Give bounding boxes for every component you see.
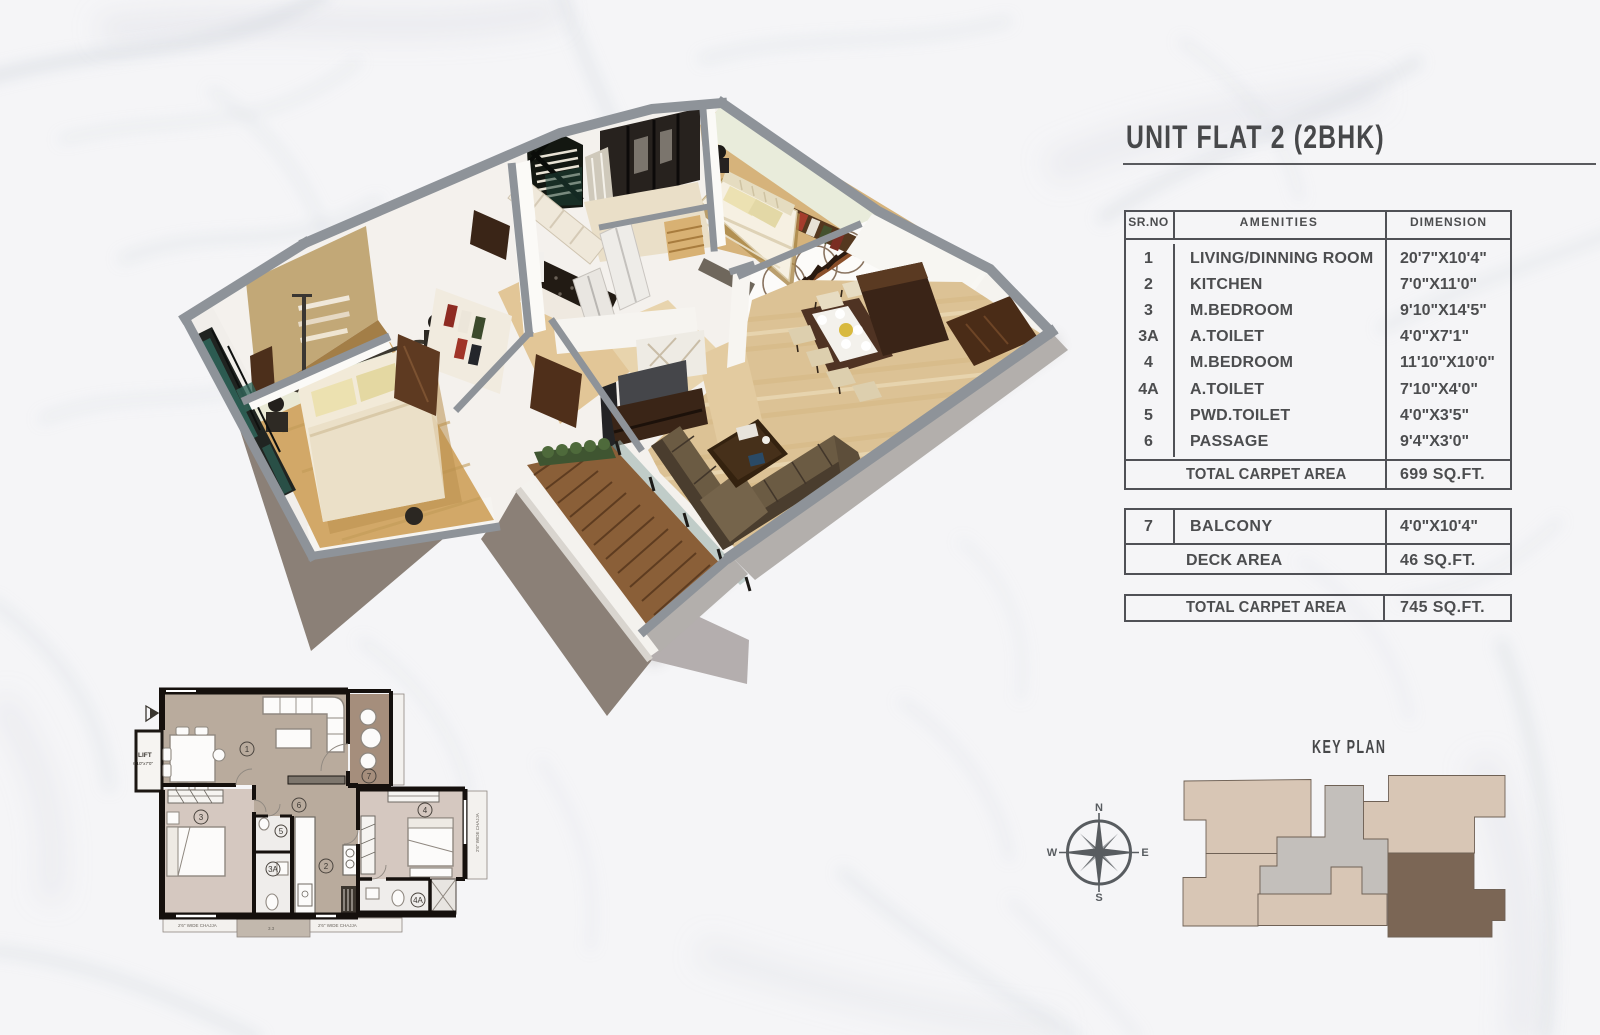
svg-text:S: S xyxy=(1095,892,1102,904)
svg-text:E: E xyxy=(1141,847,1148,859)
svg-text:N: N xyxy=(1095,802,1103,814)
svg-text:W: W xyxy=(1047,847,1058,859)
